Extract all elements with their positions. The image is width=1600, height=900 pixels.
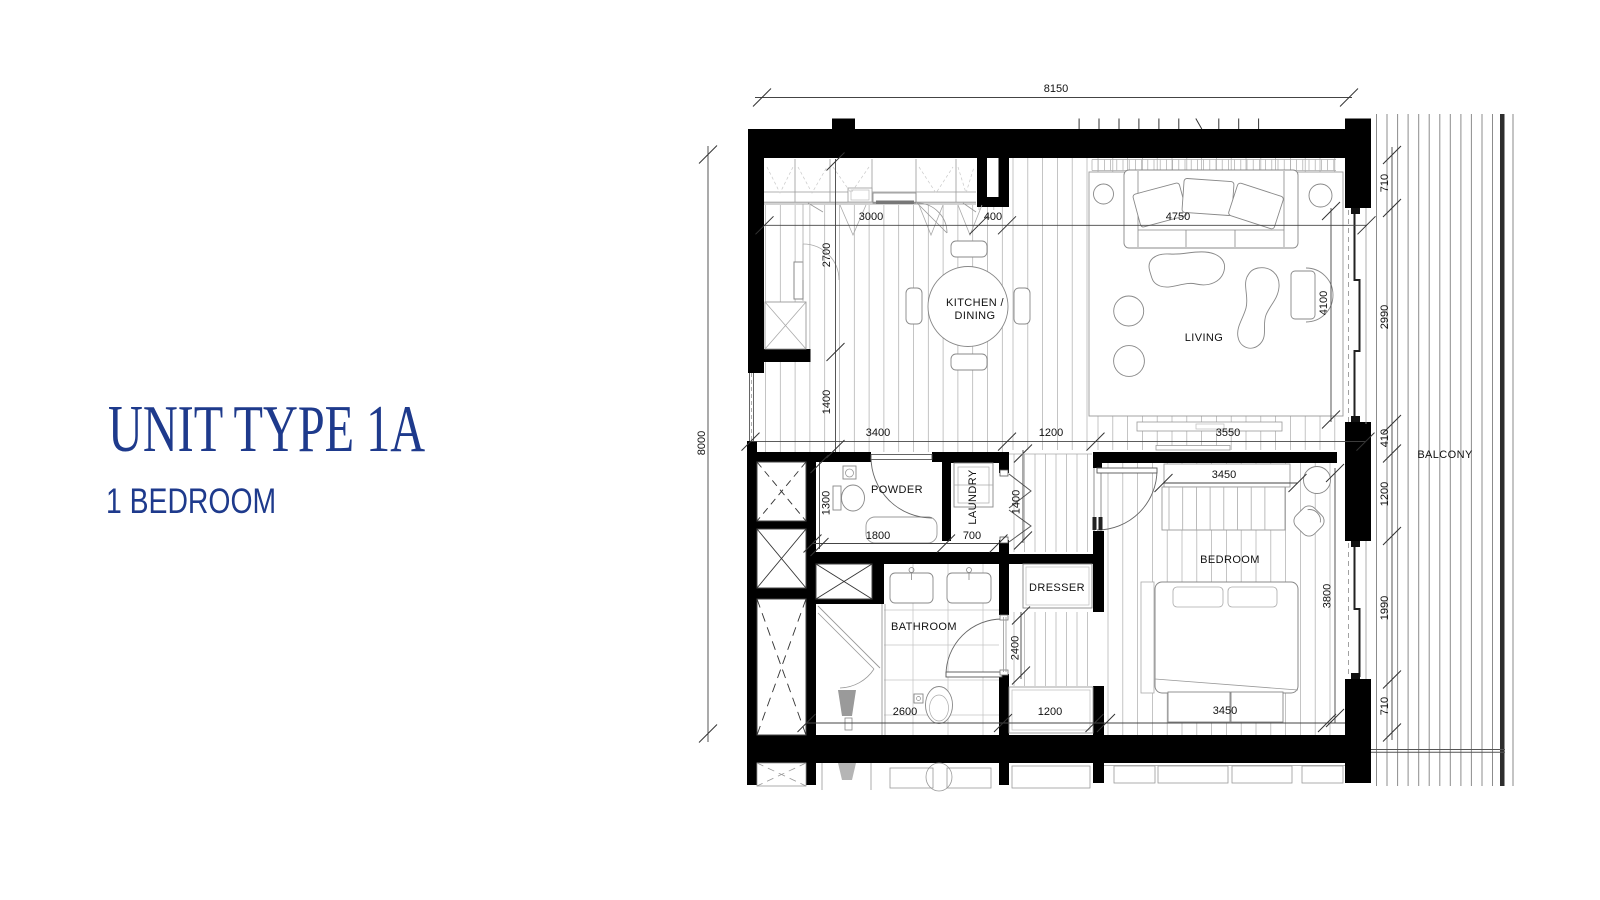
svg-text:710: 710 [1379,697,1391,715]
svg-text:8000: 8000 [696,431,708,455]
svg-text:3550: 3550 [1216,427,1240,439]
svg-text:3450: 3450 [1212,469,1236,481]
svg-text:3800: 3800 [1322,584,1334,608]
svg-text:LAUNDRY: LAUNDRY [967,469,979,524]
svg-text:710: 710 [1379,174,1391,192]
svg-text:2600: 2600 [893,706,917,718]
svg-text:3000: 3000 [859,211,883,223]
svg-text:1400: 1400 [1011,490,1023,514]
svg-text:BEDROOM: BEDROOM [1200,554,1260,566]
svg-text:BATHROOM: BATHROOM [891,621,957,633]
svg-text:400: 400 [984,211,1002,223]
svg-text:8150: 8150 [1044,83,1068,95]
svg-text:3400: 3400 [866,427,890,439]
svg-text:3450: 3450 [1213,705,1237,717]
svg-text:4100: 4100 [1318,291,1330,315]
svg-text:2700: 2700 [821,243,833,267]
svg-text:2400: 2400 [1010,636,1022,660]
svg-text:1300: 1300 [821,491,833,515]
svg-text:DRESSER: DRESSER [1029,582,1085,594]
svg-text:1200: 1200 [1039,427,1063,439]
svg-text:KITCHEN /: KITCHEN / [946,297,1005,309]
svg-text:2990: 2990 [1379,305,1391,329]
svg-text:700: 700 [963,530,981,542]
svg-text:1990: 1990 [1379,596,1391,620]
svg-text:DINING: DINING [955,310,996,322]
svg-text:4750: 4750 [1166,211,1190,223]
svg-text:POWDER: POWDER [871,484,923,496]
svg-text:1400: 1400 [821,390,833,414]
svg-text:1200: 1200 [1379,482,1391,506]
svg-text:1200: 1200 [1038,706,1062,718]
svg-text:410: 410 [1379,429,1391,447]
svg-text:BALCONY: BALCONY [1417,449,1473,461]
svg-text:LIVING: LIVING [1185,332,1223,344]
svg-text:1800: 1800 [866,530,890,542]
